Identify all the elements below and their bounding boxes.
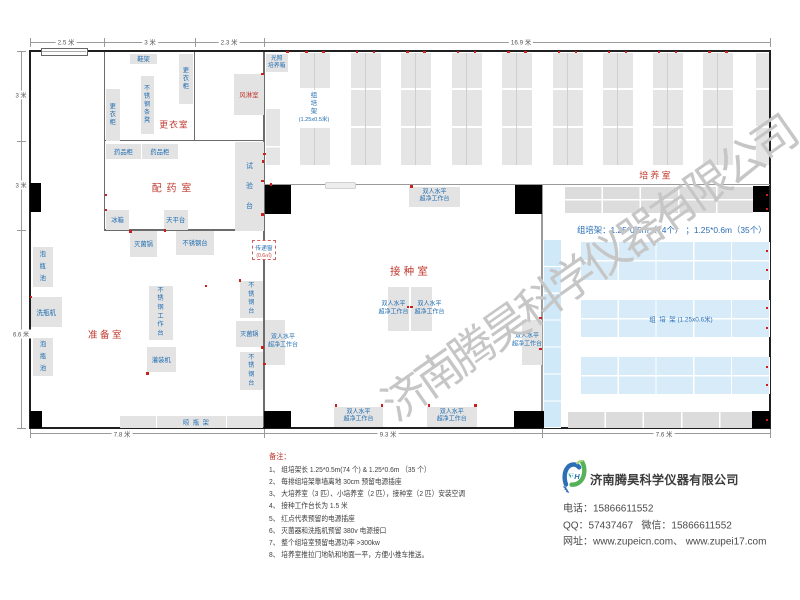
- svg-text:H: H: [574, 472, 580, 481]
